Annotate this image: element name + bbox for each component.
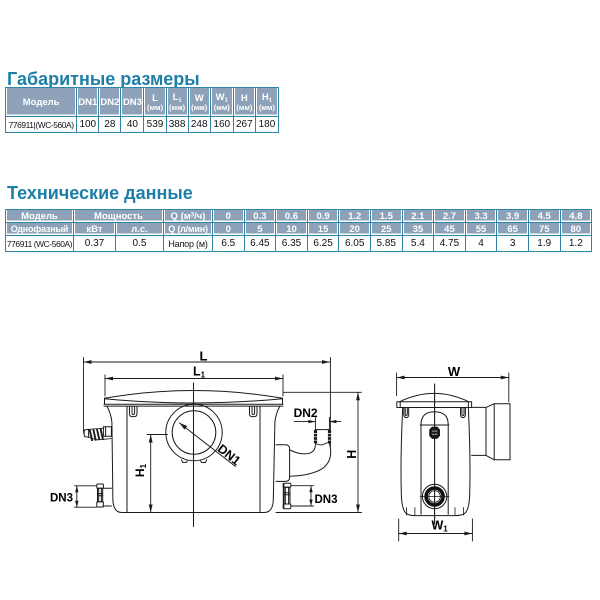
svg-text:H: H (345, 450, 359, 459)
svg-text:DN3: DN3 (50, 493, 73, 505)
svg-text:L: L (200, 349, 208, 364)
svg-text:W: W (448, 364, 461, 379)
svg-text:DN2: DN2 (294, 406, 318, 420)
svg-text:DN3: DN3 (315, 494, 338, 506)
svg-text:L1: L1 (193, 365, 206, 380)
svg-text:H1: H1 (133, 463, 148, 477)
svg-text:W1: W1 (431, 519, 448, 534)
